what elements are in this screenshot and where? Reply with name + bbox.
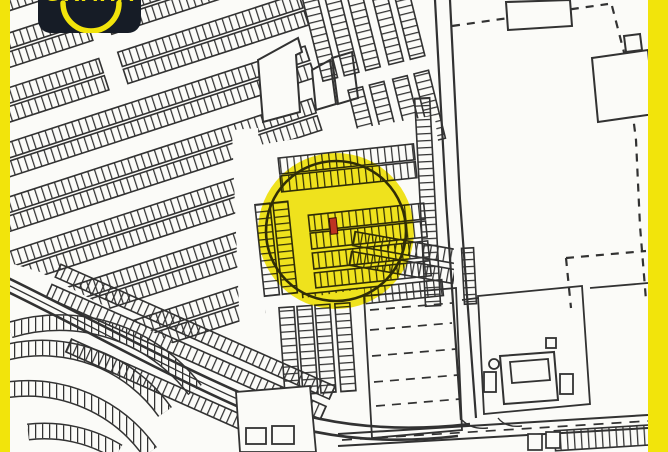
brand-logo: GRAHA (38, 0, 141, 33)
map-screenshot-page: GRAHA (0, 0, 668, 452)
roadside-lots-east (462, 248, 477, 305)
smile-arc-icon (38, 0, 135, 33)
frame-right-bar (648, 0, 668, 452)
map-canvas (0, 0, 668, 452)
frame-left-bar (0, 0, 10, 452)
location-marker (329, 218, 338, 235)
parcel-bottom-centre (236, 386, 316, 452)
